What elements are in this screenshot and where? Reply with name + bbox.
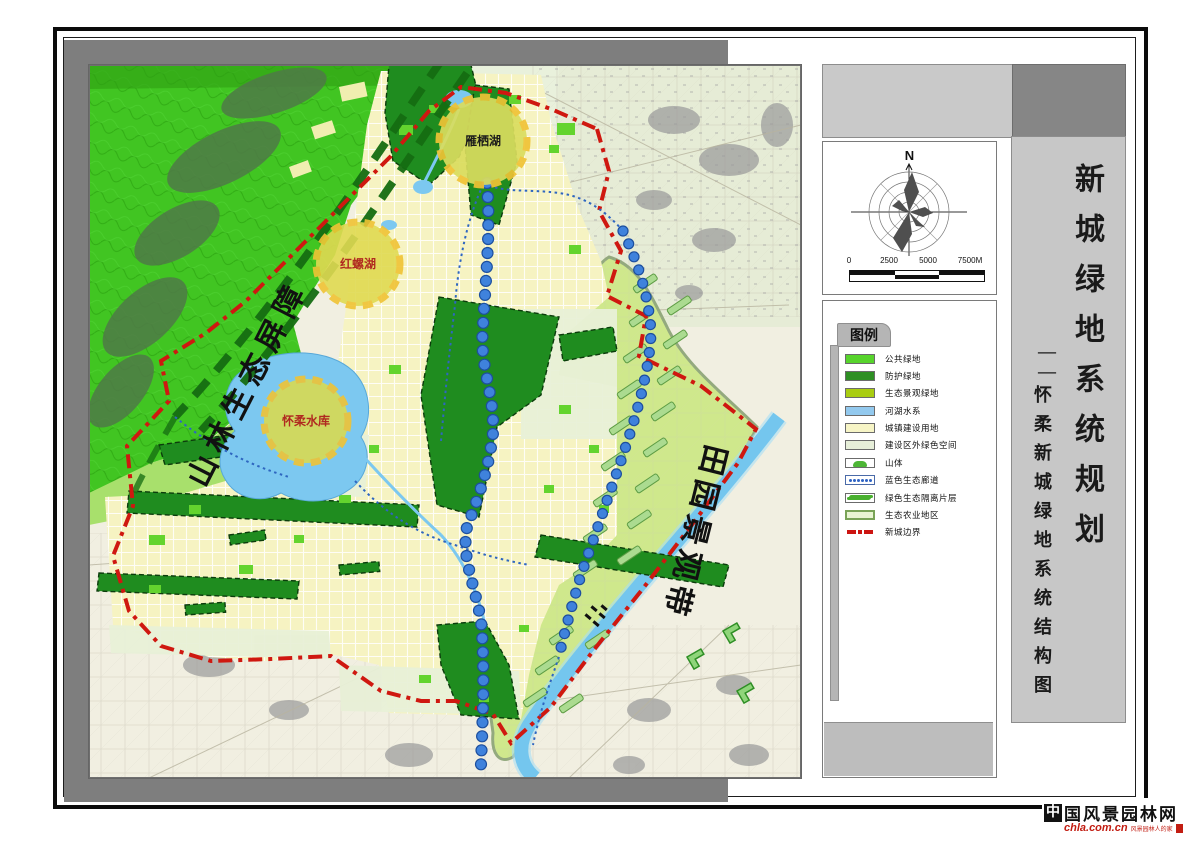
hongluo-lake-label: 红螺湖	[340, 256, 376, 271]
scale-tick-1: 2500	[880, 256, 898, 265]
yanqi-lake-label: 雁栖湖	[465, 133, 501, 148]
watermark-tagline: 风景园林人的家	[1131, 824, 1173, 833]
site-watermark: 中 国风景园林网 chla.com.cn 风景园林人的家	[1042, 798, 1191, 842]
compass-panel: N 0 2	[822, 141, 997, 295]
legend-label: 生态农业地区	[885, 509, 939, 521]
legend-swatch	[845, 527, 875, 537]
legend-item: 防护绿地	[845, 370, 990, 381]
scale-ticks: 0 2500 5000 7500M	[823, 256, 996, 268]
legend-items: 公共绿地防护绿地生态景观绿地河湖水系城镇建设用地建设区外绿色空间山体蓝色生态廊道…	[845, 353, 990, 544]
watermark-red-block	[1176, 824, 1183, 833]
legend-item: 生态景观绿地	[845, 388, 990, 399]
scale-tick-2: 5000	[919, 256, 937, 265]
legend-swatch	[845, 493, 875, 503]
map-title-main: 新城绿地系统规划	[1064, 163, 1108, 563]
legend-swatch	[845, 440, 875, 450]
scale-tick-3: 7500M	[958, 256, 982, 265]
legend-swatch	[845, 406, 875, 416]
legend-item: 绿色生态隔离片层	[845, 492, 990, 503]
legend-item: 城镇建设用地	[845, 423, 990, 434]
header-box-dark	[1012, 64, 1126, 138]
legend-label: 蓝色生态廊道	[885, 474, 939, 486]
legend-item: 公共绿地	[845, 353, 990, 364]
watermark-logo: 中	[1044, 804, 1062, 822]
legend-swatch	[845, 371, 875, 381]
header-box-light	[822, 64, 1014, 138]
scale-bar	[849, 270, 985, 282]
legend-label: 防护绿地	[885, 370, 921, 382]
planning-map: 雁栖湖 红螺湖 怀柔水库 山林生态屏障 田园景观带	[88, 64, 802, 779]
wind-rose	[839, 160, 979, 256]
legend-swatch	[845, 458, 875, 468]
legend-item: 建设区外绿色空间	[845, 440, 990, 451]
poster-page: 雁栖湖 红螺湖 怀柔水库 山林生态屏障 田园景观带 N	[0, 0, 1191, 842]
legend-label: 建设区外绿色空间	[885, 439, 957, 451]
legend-swatch	[845, 423, 875, 433]
legend-label: 生态景观绿地	[885, 387, 939, 399]
legend-item: 蓝色生态廊道	[845, 475, 990, 486]
legend-label: 河湖水系	[885, 405, 921, 417]
huairou-reservoir-label: 怀柔水库	[282, 413, 330, 428]
legend-label: 城镇建设用地	[885, 422, 939, 434]
map-svg: 雁栖湖 红螺湖 怀柔水库 山林生态屏障 田园景观带	[89, 65, 801, 778]
legend-swatch	[845, 510, 875, 520]
legend-item: 河湖水系	[845, 405, 990, 416]
legend-item: 新城边界	[845, 527, 990, 538]
legend-tab-ribbon	[830, 345, 839, 701]
legend-item: 生态农业地区	[845, 510, 990, 521]
legend-title-tab: 图例	[837, 323, 891, 347]
legend-swatch	[845, 475, 875, 485]
legend-label: 绿色生态隔离片层	[885, 492, 957, 504]
legend-label: 山体	[885, 457, 903, 469]
map-title-sub: 怀柔新城绿地系统结构图	[1029, 385, 1055, 704]
legend-item: 山体	[845, 457, 990, 468]
title-column: 新城绿地系统规划 —— 怀柔新城绿地系统结构图	[1011, 136, 1126, 723]
legend-swatch	[845, 354, 875, 364]
legend-bottom-strip	[824, 722, 993, 776]
legend-label: 新城边界	[885, 526, 921, 538]
legend-label: 公共绿地	[885, 353, 921, 365]
watermark-url[interactable]: chla.com.cn	[1064, 822, 1128, 834]
legend-panel: 图例 公共绿地防护绿地生态景观绿地河湖水系城镇建设用地建设区外绿色空间山体蓝色生…	[822, 300, 997, 778]
legend-swatch	[845, 388, 875, 398]
map-title-dash: ——	[1036, 341, 1057, 381]
scale-tick-0: 0	[847, 256, 851, 265]
